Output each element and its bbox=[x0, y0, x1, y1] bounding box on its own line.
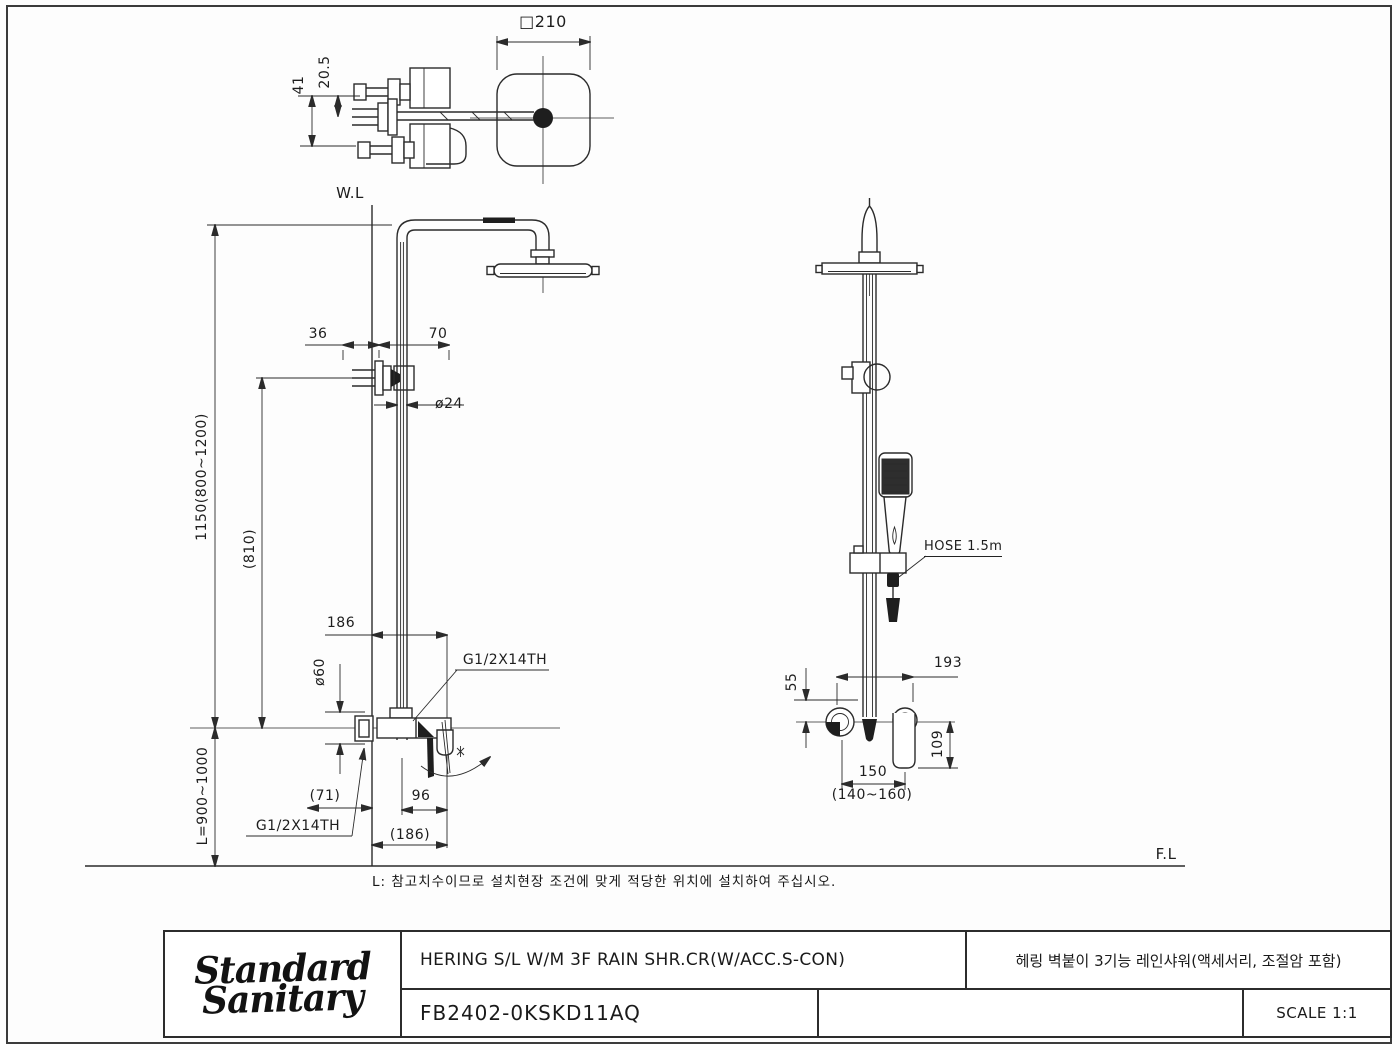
dim-1150-range: 1150(800~1200) bbox=[193, 401, 211, 553]
title-block: Standard Sanitary HERING S/L W/M 3F RAIN… bbox=[163, 930, 1392, 1038]
dim-186-paren: (186) bbox=[382, 826, 438, 844]
company-logo: Standard Sanitary bbox=[165, 932, 402, 1036]
dim-70: 70 bbox=[424, 325, 452, 343]
install-note: L: 참고치수이므로 설치현장 조건에 맞게 적당한 위치에 설치하여 주십시오… bbox=[372, 873, 872, 891]
dim-109: 109 bbox=[929, 724, 947, 764]
dim-dia60: ø60 bbox=[311, 652, 329, 692]
dim-dia24: ø24 bbox=[430, 395, 468, 413]
dim-150: 150 bbox=[854, 763, 892, 781]
product-title-en: HERING S/L W/M 3F RAIN SHR.CR(W/ACC.S-CO… bbox=[402, 932, 967, 988]
scale-label: SCALE 1:1 bbox=[1244, 990, 1390, 1036]
dim-l-range: L=900~1000 bbox=[194, 740, 212, 852]
side-view-linework bbox=[794, 198, 958, 790]
title-block-empty-cell bbox=[819, 990, 1244, 1036]
thread-label-lower: G1/2X14TH bbox=[246, 817, 350, 835]
dim-36: 36 bbox=[304, 325, 332, 343]
dim-head-square: □210 bbox=[508, 13, 578, 31]
dim-140-160: (140~160) bbox=[824, 786, 920, 804]
logo-line-2: Sanitary bbox=[202, 981, 364, 1017]
thread-label-upper: G1/2X14TH bbox=[455, 651, 555, 669]
dim-193: 193 bbox=[925, 654, 971, 672]
dim-41: 41 bbox=[290, 63, 308, 107]
floor-line-label: F.L bbox=[1146, 845, 1186, 863]
dim-186: 186 bbox=[324, 614, 358, 632]
title-block-fields: HERING S/L W/M 3F RAIN SHR.CR(W/ACC.S-CO… bbox=[402, 932, 1390, 1036]
dim-71: (71) bbox=[304, 787, 346, 805]
dim-20-5: 20.5 bbox=[316, 46, 334, 98]
model-code: FB2402-0KSKD11AQ bbox=[402, 990, 819, 1036]
hose-label: HOSE 1.5m bbox=[924, 538, 1002, 557]
dim-810: (810) bbox=[241, 521, 259, 577]
wall-line-label: W.L bbox=[330, 184, 370, 202]
top-view-linework bbox=[298, 36, 614, 184]
dim-96: 96 bbox=[406, 787, 436, 805]
drawing-sheet: W.L □210 41 20.5 36 70 ø24 1150(800~1200… bbox=[0, 0, 1400, 1050]
dim-55: 55 bbox=[783, 668, 801, 696]
product-title-ko: 헤링 벽붙이 3기능 레인샤워(액세서리, 조절암 포함) bbox=[967, 932, 1390, 988]
